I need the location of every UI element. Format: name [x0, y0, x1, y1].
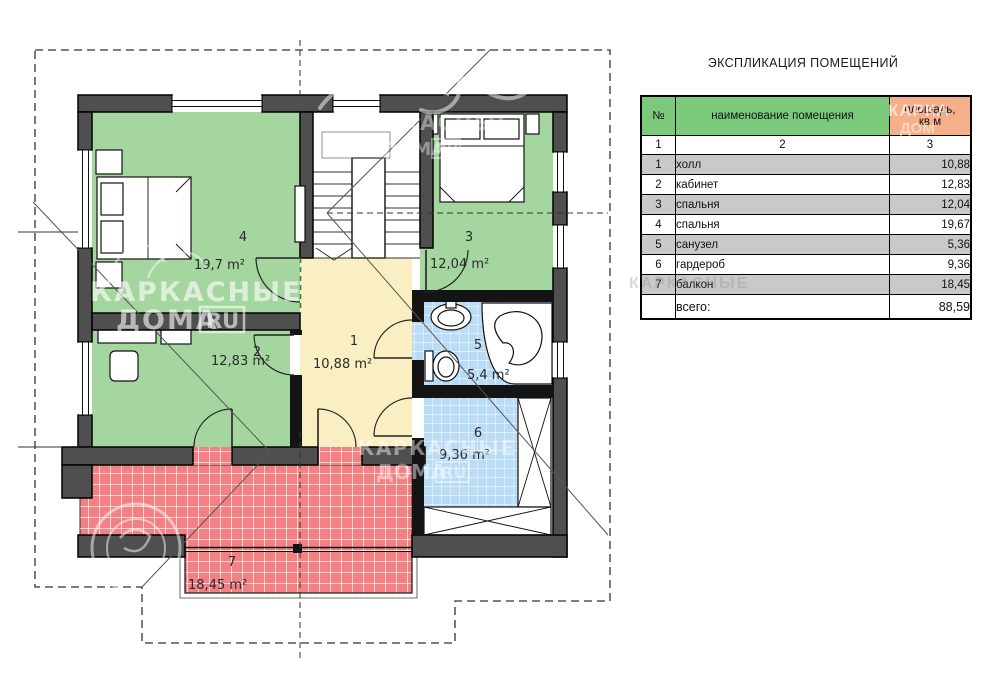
cell-number: 4: [641, 215, 676, 235]
cell-name: гардероб: [676, 255, 890, 275]
balcony-threshold-2-tiles: [318, 447, 362, 465]
nightstand: [526, 114, 539, 134]
cell-area: 18,45: [890, 275, 972, 295]
col-header-area: площадь, кв.м: [890, 96, 972, 136]
toilet-tank: [425, 351, 433, 381]
balcony-tiles: [80, 465, 412, 593]
cell-total-label: всего:: [676, 295, 890, 320]
cell-number: 5: [641, 235, 676, 255]
cell-number: 6: [641, 255, 676, 275]
nightstand: [96, 262, 122, 288]
cell-empty: [641, 295, 676, 320]
room-area: 19,7 m²: [194, 258, 245, 273]
col-header-name: наименование помещения: [676, 96, 890, 136]
window: [333, 96, 380, 111]
legend-table: № наименование помещения площадь, кв.м 1…: [640, 95, 972, 320]
room-area: 12,04 m²: [430, 257, 489, 272]
cell-number: 1: [641, 155, 676, 175]
toilet-bowl: [438, 357, 454, 377]
sink-tap: [446, 301, 456, 308]
room-area: 9,36 m²: [439, 448, 490, 463]
room-number: 3: [465, 230, 473, 245]
balcony-threshold-1-tiles: [193, 447, 232, 465]
cell-name: кабинет: [676, 175, 890, 195]
table-title: ЭКСПЛИКАЦИЯ ПОМЕЩЕНИЙ: [640, 56, 966, 70]
window: [554, 152, 566, 192]
column-number: 1: [641, 136, 676, 155]
window: [554, 342, 566, 378]
cell-area: 5,36: [890, 235, 972, 255]
cell-number: 7: [641, 275, 676, 295]
bed-room3: [426, 114, 539, 202]
column-number: 2: [676, 136, 890, 155]
table-total-row: всего: 88,59: [641, 295, 971, 320]
room-area: 12,83 m²: [211, 354, 270, 369]
table-row: 7 балкон 18,45: [641, 275, 971, 295]
table-row: 5 санузел 5,36: [641, 235, 971, 255]
room-number: 7: [228, 555, 236, 570]
cell-name: спальня: [676, 195, 890, 215]
pillow: [484, 119, 519, 139]
cell-name: балкон: [676, 275, 890, 295]
room-number: 4: [239, 230, 247, 245]
cell-area: 19,67: [890, 215, 972, 235]
col-header-area-line2: кв.м: [890, 116, 970, 128]
cell-area: 12,83: [890, 175, 972, 195]
stair-center-wall: [352, 158, 385, 258]
room-area: 10,88 m²: [313, 357, 372, 372]
table-row: 3 спальня 12,04: [641, 195, 971, 215]
room-number: 5: [474, 338, 482, 353]
cell-area: 10,88: [890, 155, 972, 175]
room-number: 6: [474, 426, 482, 441]
pillow: [101, 221, 123, 253]
col-header-area-line1: площадь,: [890, 104, 970, 116]
cell-area: 12,04: [890, 195, 972, 215]
balcony-wall-stub: [78, 535, 185, 557]
cell-name: спальня: [676, 215, 890, 235]
room-1-hall-fill: [300, 255, 412, 447]
stair-wall-right: [420, 112, 433, 248]
table-row: 2 кабинет 12,83: [641, 175, 971, 195]
railing-post: [293, 544, 302, 553]
cell-name: холл: [676, 155, 890, 175]
sink-basin: [438, 310, 464, 326]
cell-total-value: 88,59: [890, 295, 972, 320]
balcony-wall-stub: [62, 465, 92, 498]
pillow: [445, 119, 480, 139]
interior-wall: [92, 313, 300, 330]
column-number-row: 1 2 3: [641, 136, 971, 155]
window: [554, 225, 566, 268]
col-header-no: №: [641, 96, 676, 136]
cell-number: 3: [641, 195, 676, 215]
cell-area: 9,36: [890, 255, 972, 275]
staircase: [313, 112, 420, 260]
table-header-row: № наименование помещения площадь, кв.м: [641, 96, 971, 136]
table-row: 1 холл 10,88: [641, 155, 971, 175]
pillow: [101, 183, 123, 215]
column-number: 3: [890, 136, 972, 155]
cell-name: санузел: [676, 235, 890, 255]
window: [172, 96, 262, 111]
room-area: 18,45 m²: [188, 578, 247, 593]
screenshot-root: 1 10,88 m² 2 12,83 m² 3 12,04 m² 4 19,7 …: [0, 0, 1000, 682]
table-row: 6 гардероб 9,36: [641, 255, 971, 275]
room-area: 5,4 m²: [467, 368, 510, 383]
cell-number: 2: [641, 175, 676, 195]
chair: [110, 351, 138, 381]
window: [79, 150, 91, 248]
room-legend-table: № наименование помещения площадь, кв.м 1…: [640, 95, 972, 320]
window: [79, 342, 91, 415]
room-number: 1: [350, 334, 358, 349]
sliding-door-leaf: [295, 186, 305, 242]
nightstand: [96, 150, 122, 174]
table-row: 4 спальня 19,67: [641, 215, 971, 235]
